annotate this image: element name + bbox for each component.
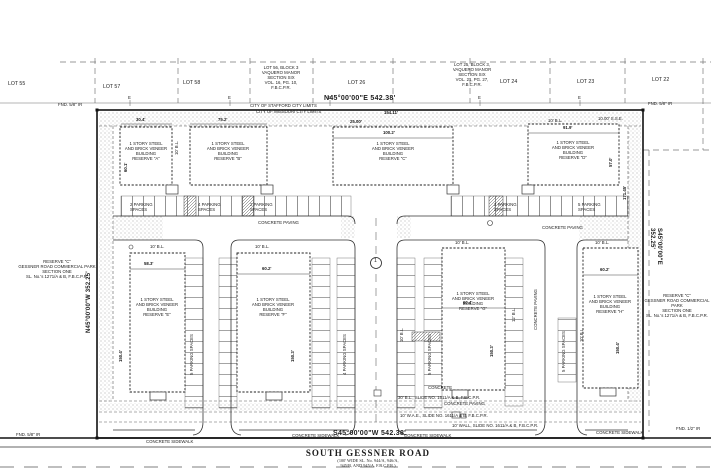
concrete-sidewalk-label: CONCRETE SIDEWALK (292, 434, 339, 439)
reserve-note-east: RESERVE "C" GESSNER ROAD COMMERCIAL PARK… (644, 294, 710, 319)
parking-count: 5 PARKING SPACES (562, 331, 567, 372)
lot-label-55: LOT 55 (8, 82, 25, 88)
building-label-e: 1 STORY STEEL AND BRICK VENEER BUILDING … (122, 298, 192, 318)
parking-count: 2 PARKING SPACES (130, 203, 162, 213)
concrete-paving-label: CONCRETE PAVING (444, 402, 485, 407)
building-depth-h: 150.4' (616, 342, 621, 354)
bearing-north: N45°00'00"E 542.38' (324, 95, 396, 103)
building-depth-g: 150.3' (490, 345, 495, 357)
lot-label-22: LOT 22 (652, 78, 669, 84)
parking-count: 5 PARKING SPACES (428, 334, 433, 375)
parking-count: 5 PARKING SPACES (578, 203, 610, 213)
monument-sw: FND. 5/8" IR (16, 433, 40, 438)
concrete-sidewalk-label: CONCRETE SIDEWALK (404, 434, 451, 439)
road-detail: (100' WIDE SL. No. 944/A, 946/A, 945/B, … (298, 459, 438, 469)
parking-count: 2 PARKING SPACES (250, 203, 282, 213)
building-depth-f: 150.3' (291, 350, 296, 362)
concrete-label: CONCRETE (428, 386, 452, 391)
bl10-label: 10' B.L. (595, 241, 609, 246)
monument-nw: FND. 5/8" IR (58, 103, 82, 108)
monument-se: FND. 1/2" IR (676, 427, 700, 432)
dim-171: 171.45' (623, 186, 628, 200)
electric-marker: E (578, 96, 581, 101)
lot-label-25-block3: LOT 25, BLOCK 3, VAQUERO MANOR SECTION S… (440, 63, 504, 88)
concrete-sidewalk-label: CONCRETE SIDEWALK (146, 440, 193, 445)
lot-label-24: LOT 24 (500, 80, 517, 86)
wall10-note: 10' WALL, SLIDE NO. 1611/A & B, F.B.C.P.… (452, 424, 538, 429)
building-width-a: 30.4' (136, 118, 145, 123)
building-depth-a: 60.1' (124, 163, 129, 172)
site-plan: LOT 55 LOT 57 LOT 58 LOT 56, BLOCK 3 VAQ… (0, 0, 711, 472)
building-label-b: 1 STORY STEEL AND BRICK VENEER BUILDING … (193, 142, 263, 162)
concrete-paving-label: CONCRETE PAVING (534, 289, 539, 330)
concrete-paving-label: CONCRETE PAVING (542, 226, 583, 231)
keynote-1: 1 (374, 259, 377, 265)
dim-154: 154.11' (384, 111, 398, 116)
bearing-south: S45°00'00"W 542.38' (333, 430, 406, 438)
lot-label-23: LOT 23 (577, 80, 594, 86)
bl10-label: 10' B.L. (548, 119, 562, 124)
lot-label-58: LOT 58 (183, 81, 200, 87)
bl10-label: 10' B.L. (175, 141, 180, 155)
building-width-d: 91.9' (563, 126, 572, 131)
lot-label-56-block3: LOT 56, BLOCK 3 VAQUERO MANOR SECTION SI… (252, 66, 310, 91)
bearing-east: S45°00'00"E 352.25' (648, 228, 662, 277)
bl10-label: 10' B.L. (400, 328, 405, 342)
building-label-c: 1 STORY STEEL AND BRICK VENEER BUILDING … (358, 142, 428, 162)
building-width-c: 100.2' (383, 131, 395, 136)
building-label-h: 1 STORY STEEL AND BRICK VENEER BUILDING … (575, 295, 645, 315)
building-label-f: 1 STORY STEEL AND BRICK VENEER BUILDING … (238, 298, 308, 318)
bl10-label: 10' B.L. (580, 328, 585, 342)
lot-label-57: LOT 57 (103, 85, 120, 91)
lot-label-26: LOT 26 (348, 81, 365, 87)
electric-marker: E (478, 96, 481, 101)
concrete-paving-label: CONCRETE PAVING (258, 221, 299, 226)
dim-25: 25.00' (350, 120, 362, 125)
building-width-f: 60.2' (262, 267, 271, 272)
parking-count: 4 PARKING SPACES (198, 203, 230, 213)
building-width-g: 60.4' (463, 301, 472, 306)
building-label-a: 1 STORY STEEL AND BRICK VENEER BUILDING … (111, 142, 181, 162)
bl12-label: 12' B.L. (512, 308, 517, 322)
parking-count: 4 PARKING SPACES (343, 334, 348, 375)
building-width-b: 75.2' (218, 118, 227, 123)
parking-count: 5 PARKING SPACES (190, 334, 195, 375)
wae10-note: 10' W.A.E., SLIDE NO. 1611/A & B, F.B.C.… (400, 414, 488, 419)
building-label-g: 1 STORY STEEL AND BRICK VENEER BUILDING … (438, 292, 508, 312)
bearing-west: N45°00'00"W 352.25' (86, 271, 93, 333)
building-label-d: 1 STORY STEEL AND BRICK VENEER BUILDING … (538, 141, 608, 161)
plan-linework (0, 0, 711, 472)
bl10-label: 10' B.L. (150, 245, 164, 250)
electric-marker: E (128, 96, 131, 101)
city-limits-missouri: CITY OF MISSOURI CITY LIMITS (256, 110, 321, 115)
building-width-h: 60.2' (600, 268, 609, 273)
building-width-e: 58.3' (144, 262, 153, 267)
parking-count: 2 PARKING SPACES (494, 203, 526, 213)
concrete-sidewalk-label: CONCRETE SIDEWALK (596, 431, 643, 436)
road-name: SOUTH GESSNER ROAD (298, 448, 438, 458)
building-depth-e: 150.4' (119, 350, 124, 362)
monument-ne: FND. 5/8" IR (648, 102, 672, 107)
sse10-note: 10.00' S.S.E. (598, 117, 623, 122)
bl10-label: 10' B.L. (255, 245, 269, 250)
reserve-note-west: RESERVE "C" GESSNER ROAD COMMERCIAL PARK… (18, 260, 96, 280)
bl10-label: 10' B.L. (455, 241, 469, 246)
electric-marker: E (228, 96, 231, 101)
building-depth-d: 57.0' (609, 158, 614, 167)
